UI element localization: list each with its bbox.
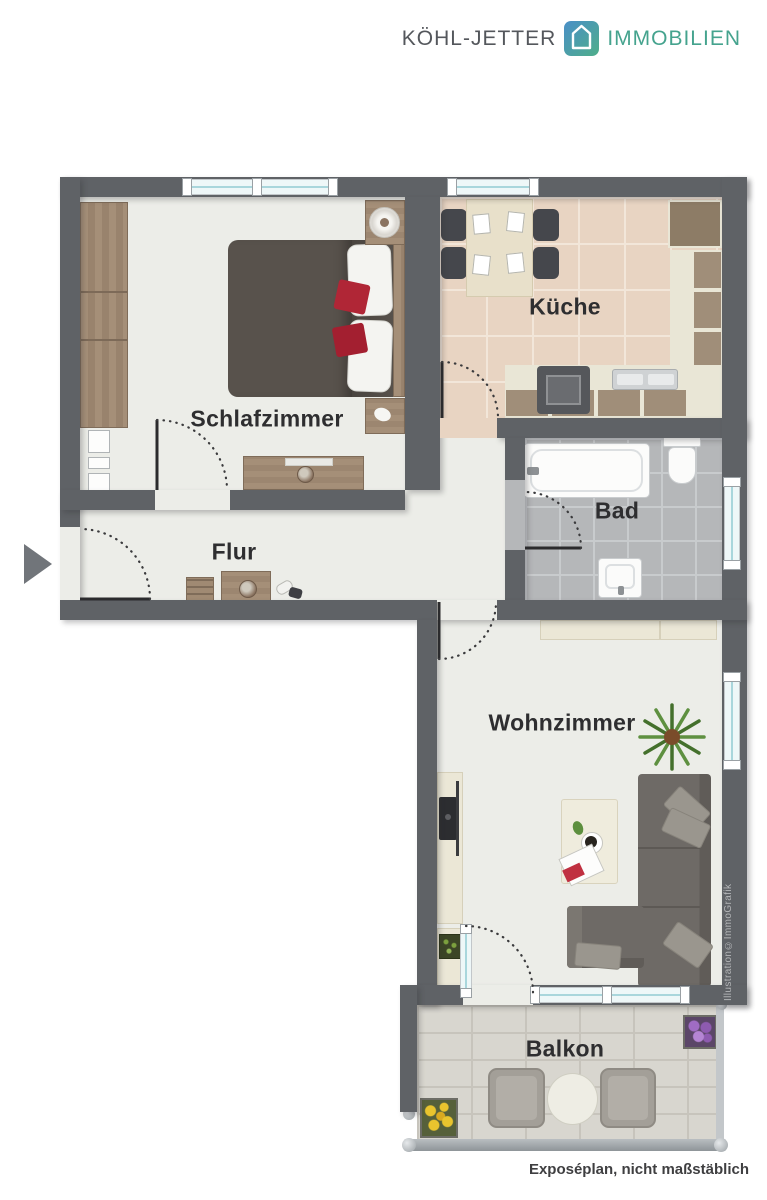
railing-finial	[714, 1138, 728, 1152]
bathroom-window	[724, 478, 740, 569]
balcony-railing	[404, 1139, 726, 1151]
living-room-label: Wohnzimmer	[489, 710, 636, 737]
brand-logo: KÖHL-JETTER IMMOBILIEN	[402, 21, 741, 56]
potted-plant-small	[439, 934, 461, 959]
hallway-floor-upper	[440, 438, 505, 510]
flower-pot-sunflowers	[420, 1098, 458, 1138]
bathroom-sink	[598, 558, 642, 598]
illustration-credit: Illustration©ImmoGrafik	[723, 856, 741, 1001]
counter-module	[694, 292, 721, 328]
house-icon	[564, 21, 599, 56]
shoe-rack	[186, 577, 214, 601]
bed-headboard	[393, 240, 405, 397]
bedroom-label: Schlafzimmer	[190, 406, 343, 433]
bathtub	[523, 443, 650, 498]
stove	[537, 366, 590, 414]
red-cushion	[332, 322, 369, 357]
wall-kitchen-bottom	[497, 418, 747, 438]
brand-name: KÖHL-JETTER	[402, 27, 557, 51]
sideboard	[540, 620, 717, 640]
balcony-label: Balkon	[526, 1036, 604, 1063]
nightstand	[365, 398, 405, 434]
bedroom-window	[183, 179, 337, 195]
hallway-cabinet	[221, 571, 271, 601]
balcony-door-leaf	[460, 925, 472, 995]
flower-pot-purple	[683, 1015, 717, 1049]
wardrobe	[80, 202, 128, 428]
dining-chair	[533, 209, 559, 241]
counter-module	[694, 252, 721, 288]
entrance-opening	[60, 527, 80, 600]
wall-living-left	[417, 620, 437, 1005]
living-door-opening	[437, 600, 497, 620]
entrance-arrow-icon	[24, 544, 52, 584]
counter-module	[598, 390, 640, 416]
living-window	[724, 673, 740, 769]
dining-chair	[441, 247, 467, 279]
tv-bracket	[439, 797, 457, 840]
balcony-table	[547, 1073, 598, 1125]
balcony-door-opening	[463, 985, 533, 1005]
plant-leaf	[571, 820, 585, 837]
coffee-table	[561, 799, 618, 884]
kitchen-door-opening	[440, 418, 497, 438]
tv-screen	[456, 781, 459, 856]
kitchen-sink	[612, 369, 678, 390]
bathroom-door-opening	[505, 480, 525, 550]
fridge-cabinet	[668, 200, 722, 248]
counter-module	[694, 332, 721, 368]
wall-balcony-left	[400, 985, 417, 1112]
balcony-railing-side	[716, 1005, 724, 1141]
counter-module	[644, 390, 686, 416]
balcony-window	[531, 987, 689, 1003]
toilet-bowl	[668, 447, 696, 484]
kitchen-label: Küche	[529, 294, 601, 321]
table-lamp	[369, 207, 400, 238]
wall-bedroom-bottom	[60, 490, 405, 510]
tv-board	[437, 772, 463, 924]
bedroom-door-opening	[155, 490, 230, 510]
brand-suffix: IMMOBILIEN	[607, 27, 741, 51]
red-cushion	[333, 279, 371, 315]
dining-chair	[533, 247, 559, 279]
scale-disclaimer: Exposéplan, nicht maßstäblich	[529, 1161, 749, 1178]
hallway-floor-nook	[405, 490, 440, 510]
shelf-box	[88, 430, 110, 453]
wall-hallway-bottom	[60, 600, 747, 620]
bed-duvet	[228, 240, 352, 397]
shelf-box	[88, 457, 110, 469]
bathroom-label: Bad	[595, 498, 639, 525]
kitchen-window	[448, 179, 538, 195]
balcony-chair	[488, 1068, 545, 1128]
dresser	[243, 456, 364, 490]
hallway-label: Flur	[212, 539, 257, 566]
wall-top	[60, 177, 747, 197]
balcony-chair	[600, 1068, 656, 1128]
railing-finial	[402, 1138, 416, 1152]
dining-table	[466, 199, 533, 297]
floor-plan-page: KÖHL-JETTER IMMOBILIEN	[0, 0, 767, 1200]
wall-bedroom-kitchen	[405, 197, 440, 490]
dining-chair	[441, 209, 467, 241]
sofa-cushion	[574, 942, 622, 970]
